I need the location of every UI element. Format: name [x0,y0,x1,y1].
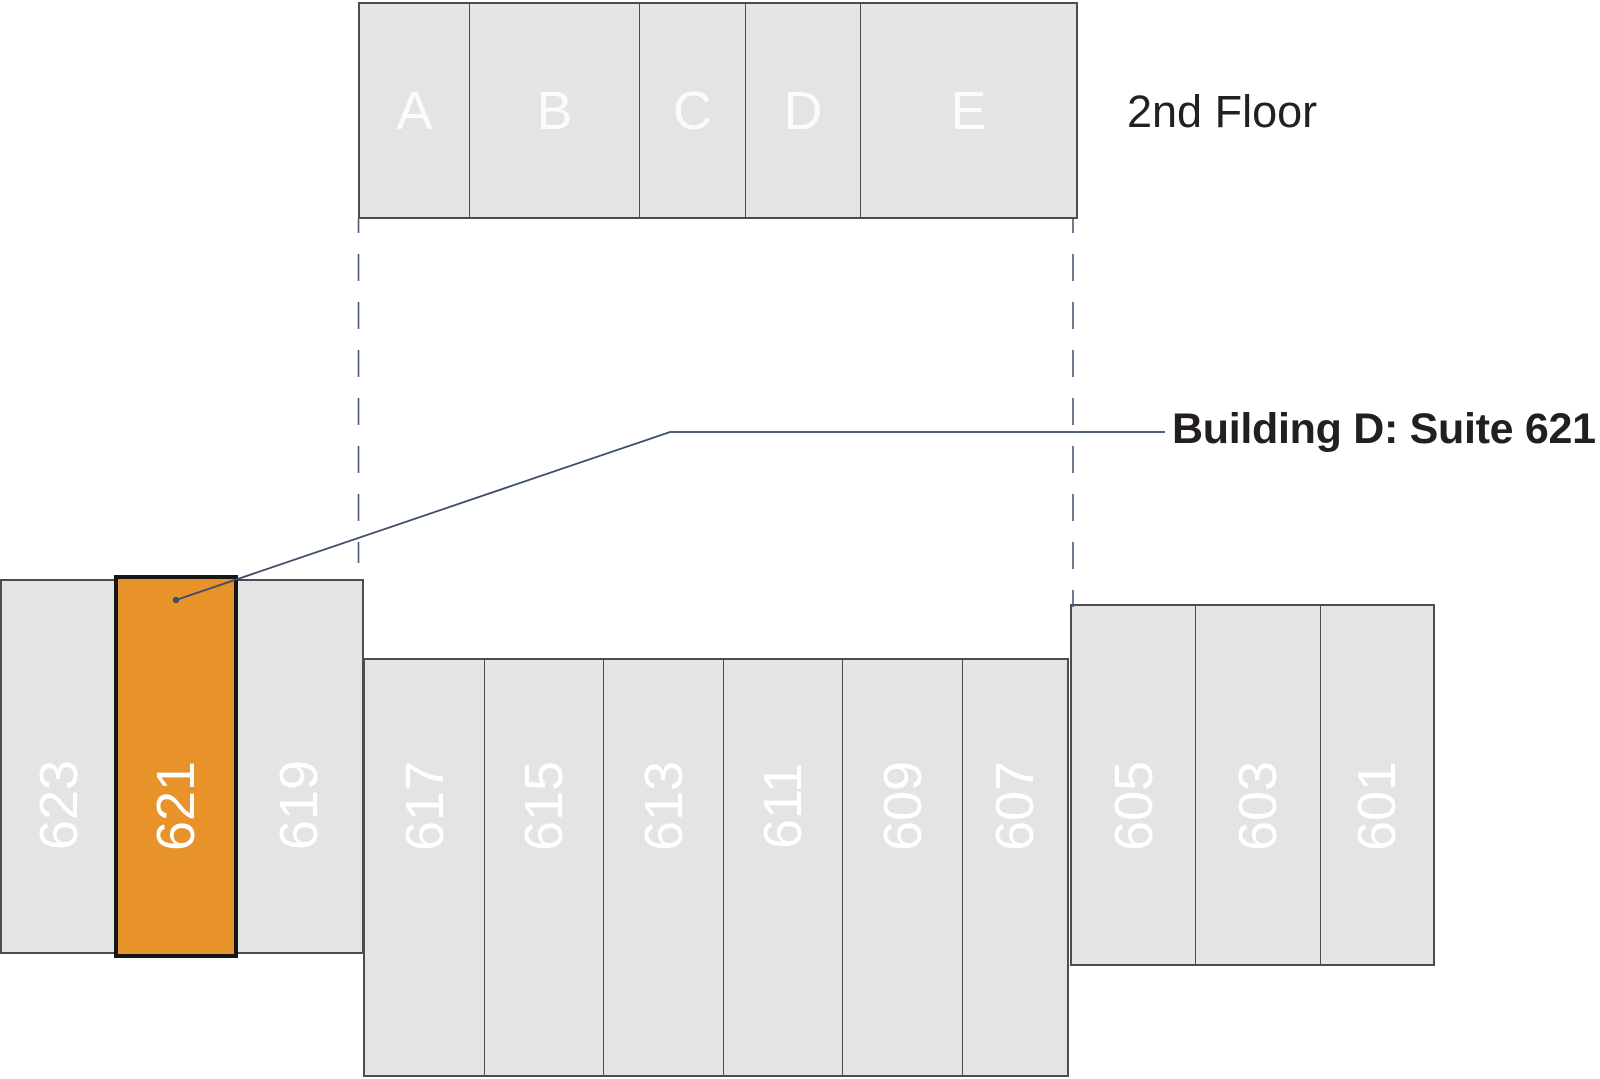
suite-617-label: 617 [398,761,452,851]
building-d: D [746,4,861,217]
callout-label: Building D: Suite 621 [1172,405,1596,454]
suite-607: 607 [963,660,1067,1075]
suite-601-label: 601 [1350,761,1404,851]
suite-615-label: 615 [517,761,571,851]
suite-613-label: 613 [637,761,691,851]
floor-plan-diagram: A B C D E 2nd Floor 623 619 617 615 [0,0,1600,1079]
suite-619-label: 619 [272,760,326,850]
callout-line [176,432,1165,600]
suite-613: 613 [604,660,724,1075]
suite-621-label: 621 [149,761,203,851]
suite-623-label: 623 [32,760,86,850]
suite-601: 601 [1321,606,1433,964]
floor-title: 2nd Floor [1127,86,1317,138]
suite-611: 611 [724,660,843,1075]
building-e-label: E [950,80,986,142]
building-b-label: B [536,80,572,142]
suite-609-label: 609 [876,761,930,851]
east-suite-block: 605 603 601 [1070,604,1435,966]
suite-615: 615 [485,660,604,1075]
building-a: A [360,4,470,217]
suite-619: 619 [235,581,362,952]
suite-611-label: 611 [756,763,810,849]
second-floor-building-row: A B C D E [358,2,1078,219]
highlighted-suite-621: 621 [114,575,238,958]
suite-617: 617 [365,660,485,1075]
building-a-label: A [396,80,432,142]
suite-603: 603 [1196,606,1321,964]
center-suite-block: 617 615 613 611 609 607 [363,658,1069,1077]
suite-623: 623 [2,581,117,952]
suite-609: 609 [843,660,963,1075]
building-c-label: C [673,80,712,142]
suite-607-label: 607 [988,761,1042,851]
building-d-label: D [784,80,823,142]
building-e: E [861,4,1076,217]
building-b: B [470,4,640,217]
suite-605: 605 [1072,606,1196,964]
suite-605-label: 605 [1107,761,1161,851]
building-c: C [640,4,746,217]
suite-603-label: 603 [1231,761,1285,851]
